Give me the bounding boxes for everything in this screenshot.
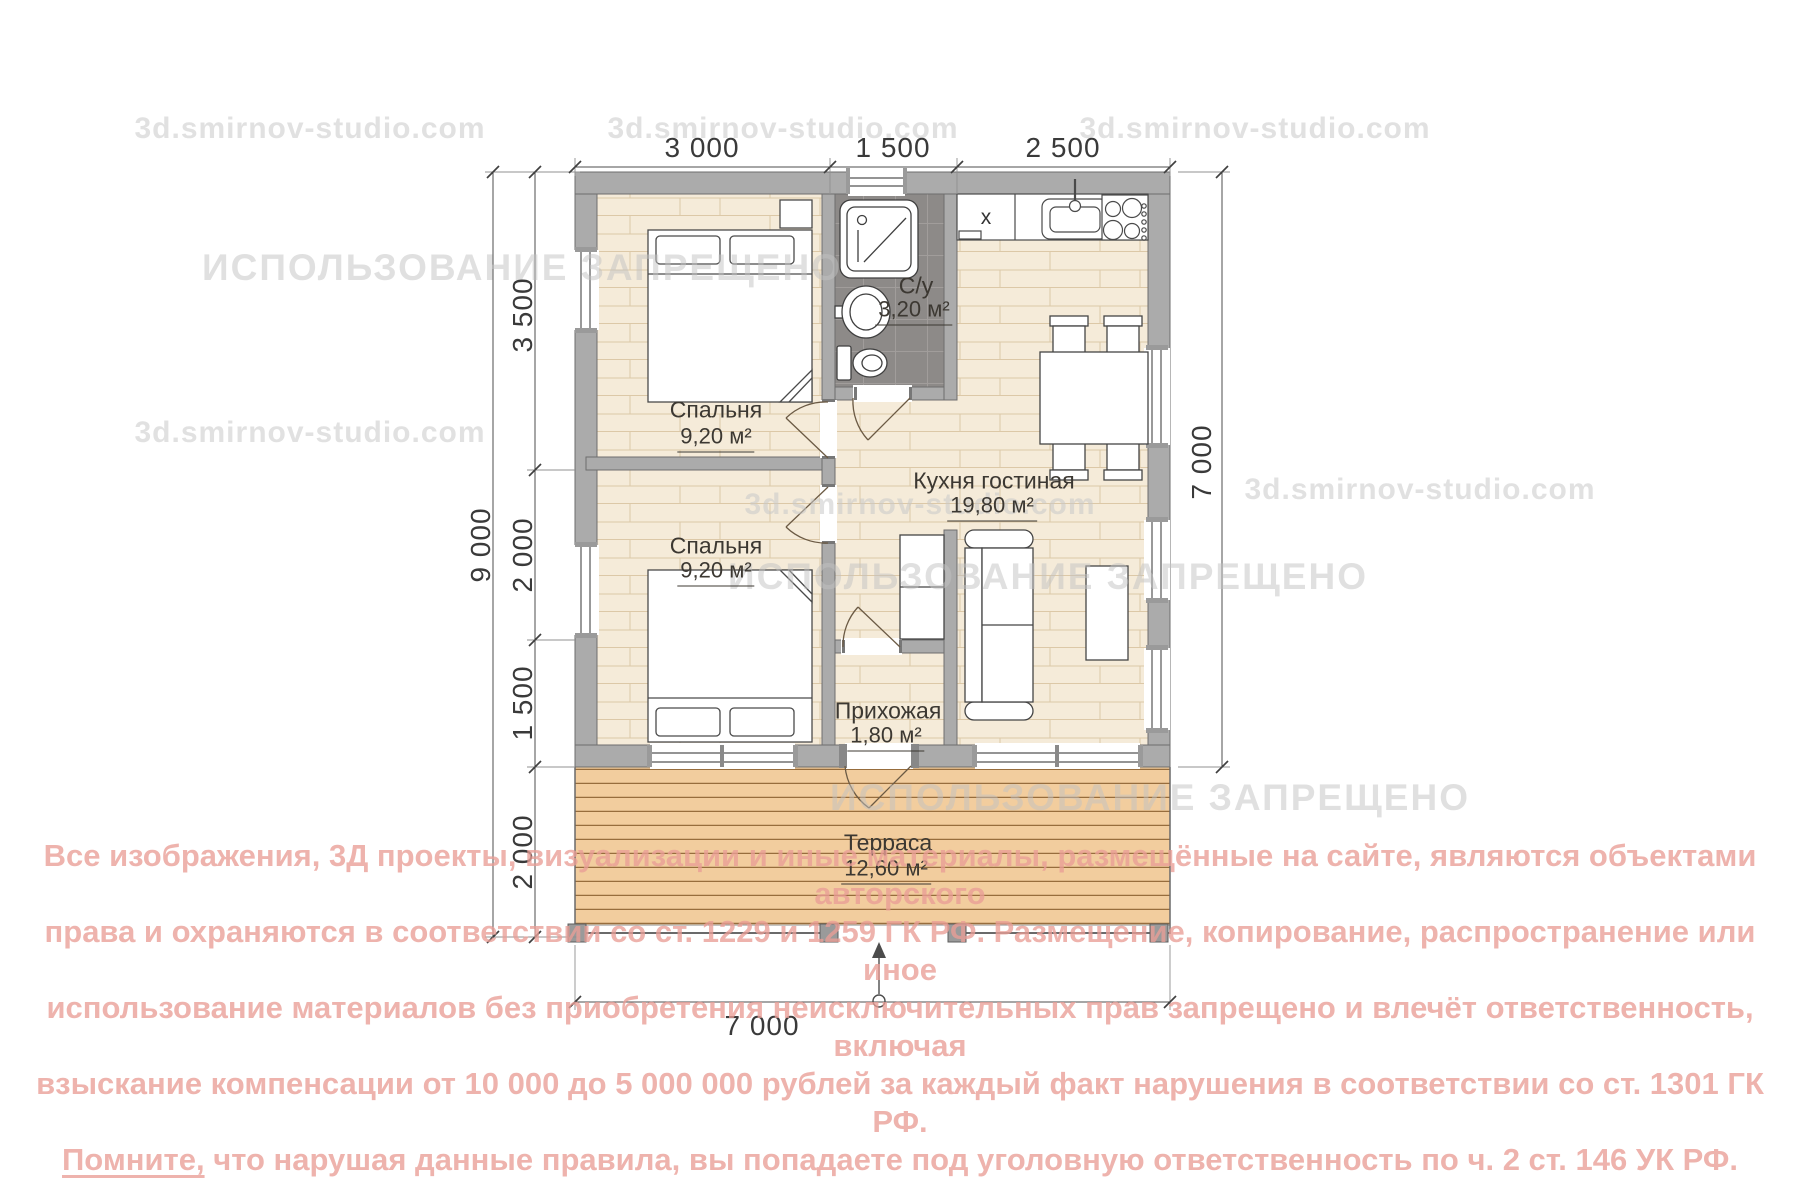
dim-top-2500: 2 500 bbox=[1025, 132, 1100, 164]
dim-left-3500: 3 500 bbox=[507, 277, 539, 352]
watermark-forbidden: ИСПОЛЬЗОВАНИЕ ЗАПРЕЩЕНО bbox=[830, 777, 1470, 819]
room-kitchen-living-area: 19,80 м² bbox=[947, 493, 1037, 522]
copyright-line: использование материалов без приобретени… bbox=[30, 989, 1770, 1065]
bedroom1-furniture bbox=[648, 200, 812, 402]
room-kitchen-living-name: Кухня гостиная bbox=[913, 468, 1074, 495]
copyright-line: права и охраняются в соответствии со ст.… bbox=[30, 913, 1770, 989]
dim-left-9000: 9 000 bbox=[465, 507, 497, 582]
watermark-forbidden: ИСПОЛЬЗОВАНИЕ ЗАПРЕЩЕНО bbox=[728, 556, 1368, 598]
room-bedroom1-area: 9,20 м² bbox=[677, 424, 754, 453]
dim-left-1500: 1 500 bbox=[507, 665, 539, 740]
room-bathroom-name: С/у bbox=[899, 273, 934, 300]
dim-top-1500: 1 500 bbox=[855, 132, 930, 164]
watermark-site: 3d.smirnov-studio.com bbox=[134, 416, 485, 450]
room-hallway-name: Прихожая bbox=[835, 698, 942, 725]
watermark-site: 3d.smirnov-studio.com bbox=[134, 112, 485, 146]
copyright-notice: Все изображения, 3Д проекты, визуализаци… bbox=[30, 837, 1770, 1179]
room-hallway-area: 1,80 м² bbox=[847, 723, 924, 752]
kitchen-unit-label: x bbox=[981, 206, 992, 230]
copyright-line: Все изображения, 3Д проекты, визуализаци… bbox=[30, 837, 1770, 913]
room-bedroom2-name: Спальня bbox=[670, 533, 762, 560]
room-bedroom1-name: Спальня bbox=[670, 397, 762, 424]
room-bathroom-area: 3,20 м² bbox=[875, 297, 952, 326]
copyright-line: взыскание компенсации от 10 000 до 5 000… bbox=[30, 1065, 1770, 1141]
copyright-line: Помните, что нарушая данные правила, вы … bbox=[30, 1141, 1770, 1179]
dim-left-2000a: 2 000 bbox=[507, 517, 539, 592]
dim-right-7000: 7 000 bbox=[1186, 424, 1218, 499]
floor-plan-page: 3d.smirnov-studio.com 3d.smirnov-studio.… bbox=[0, 0, 1800, 1200]
room-bedroom2-area: 9,20 м² bbox=[677, 558, 754, 587]
copyright-line-rest: что нарушая данные правила, вы попадаете… bbox=[205, 1142, 1738, 1177]
copyright-underlined-word: Помните, bbox=[62, 1142, 205, 1177]
watermark-site: 3d.smirnov-studio.com bbox=[1244, 473, 1595, 507]
dim-top-3000: 3 000 bbox=[664, 132, 739, 164]
watermark-site: 3d.smirnov-studio.com bbox=[1079, 112, 1430, 146]
